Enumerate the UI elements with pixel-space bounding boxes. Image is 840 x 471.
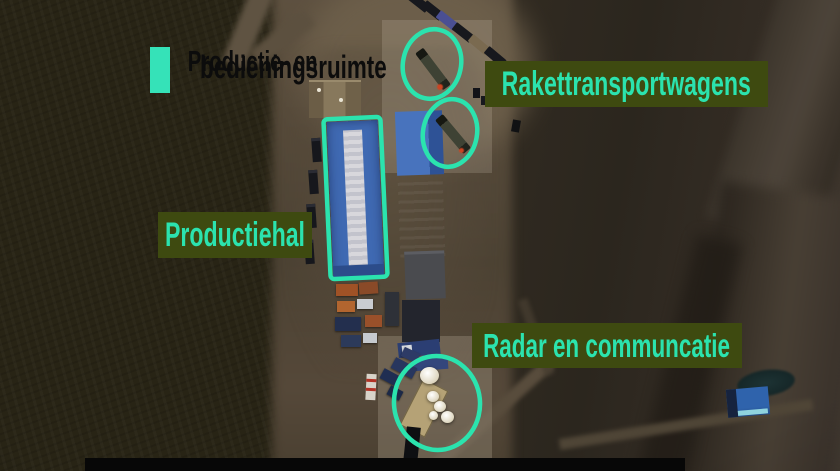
transport-truck-circle-bottom (418, 95, 483, 171)
label-production-hall: Productiehal (158, 212, 312, 258)
label-radar-comms: Radar en communcatie (472, 323, 742, 368)
transport-truck-circle-top (396, 24, 467, 105)
label-text: Rakettransportwagens (502, 65, 751, 104)
production-hall-rectangle (323, 117, 387, 279)
satellite-graphic: Productie- en bedieningsruimte Rakettran… (0, 0, 840, 471)
label-line: bedieningsruimte (150, 47, 170, 93)
label-text: Radar en communcatie (484, 327, 731, 365)
label-text: Productiehal (165, 216, 305, 255)
label-rocket-transporters: Rakettransportwagens (485, 61, 768, 107)
radar-circle (389, 352, 484, 454)
label-text: bedieningsruimte (200, 47, 387, 87)
